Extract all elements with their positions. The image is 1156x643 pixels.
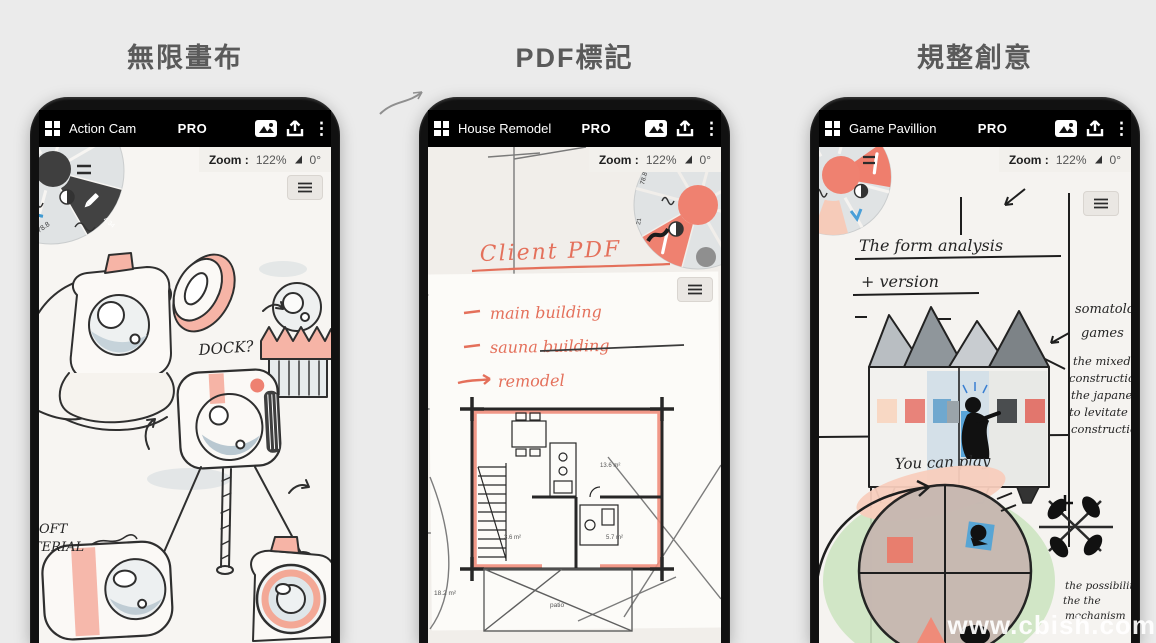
app-bar: Game Pavillion PRO ⋮ bbox=[819, 110, 1131, 147]
note-line: the possibility of bbox=[1065, 580, 1131, 592]
wheel-center[interactable] bbox=[822, 156, 860, 194]
halfmoon-icon bbox=[855, 185, 868, 198]
zoom-indicator[interactable]: Zoom : 122% 0° bbox=[589, 147, 721, 172]
pro-badge: PRO bbox=[178, 121, 208, 136]
grid-menu-icon[interactable] bbox=[434, 121, 450, 137]
version-heading: + version bbox=[861, 272, 939, 291]
note-line: the the bbox=[1063, 595, 1101, 607]
note-sauna-building: sauna building bbox=[490, 336, 610, 357]
zoom-label: Zoom : bbox=[1009, 153, 1049, 167]
angle-value: 0° bbox=[310, 153, 321, 167]
background-sketch-line bbox=[378, 84, 426, 120]
share-export-icon[interactable] bbox=[675, 119, 695, 138]
share-export-icon[interactable] bbox=[285, 119, 305, 138]
side-note-somatology: somatology bbox=[1075, 302, 1131, 317]
camera-sketch-bottom-right bbox=[251, 537, 331, 641]
layers-menu-button[interactable] bbox=[677, 277, 713, 302]
tool-wheel[interactable] bbox=[819, 147, 891, 235]
note-remodel: remodel bbox=[498, 371, 565, 391]
zoom-value: 122% bbox=[646, 153, 677, 167]
pro-badge: PRO bbox=[581, 121, 611, 136]
drawing-canvas[interactable]: Zoom : 122% 0° bbox=[428, 147, 721, 643]
room-area-mid: 5.7 m² bbox=[606, 535, 623, 541]
zoom-value: 122% bbox=[1056, 153, 1087, 167]
client-pdf-heading: Client PDF bbox=[479, 237, 621, 267]
angle-value: 0° bbox=[700, 153, 711, 167]
zoom-indicator[interactable]: Zoom : 122% 0° bbox=[199, 147, 331, 172]
zoom-label: Zoom : bbox=[599, 153, 639, 167]
side-note-games: games bbox=[1081, 326, 1124, 341]
house-remodel-sketch: Client PDF main building sauna building … bbox=[428, 147, 721, 643]
angle-icon bbox=[684, 155, 693, 164]
room-area-large: 13.6 m² bbox=[600, 463, 620, 469]
soft-note-2: TERIAL bbox=[39, 540, 84, 555]
image-import-icon[interactable] bbox=[645, 120, 667, 137]
phone-mockup-1: Action Cam PRO ⋮ Zoom : 122% 0° bbox=[30, 97, 340, 643]
pro-badge: PRO bbox=[978, 121, 1008, 136]
app-bar: House Remodel PRO ⋮ bbox=[428, 110, 721, 147]
wheel-center[interactable] bbox=[678, 185, 718, 225]
smudge-icon bbox=[696, 247, 716, 267]
overflow-menu-icon[interactable]: ⋮ bbox=[703, 120, 715, 137]
tool-size-label: 4.34 bbox=[102, 216, 116, 230]
image-import-icon[interactable] bbox=[1055, 120, 1077, 137]
layers-menu-button[interactable] bbox=[287, 175, 323, 200]
feature-title-1: 無限畫布 bbox=[30, 36, 340, 75]
blue-square-figure bbox=[965, 521, 994, 550]
note-line: to levitate above bbox=[1069, 405, 1131, 419]
game-pavillion-sketch: The form analysis + version somatology g… bbox=[819, 147, 1131, 643]
angle-icon bbox=[1094, 155, 1103, 164]
grid-menu-icon[interactable] bbox=[45, 121, 61, 137]
note-line: the japanese' bbox=[1071, 388, 1131, 402]
note-line: the mixed bbox=[1073, 354, 1131, 368]
share-export-icon[interactable] bbox=[1085, 119, 1105, 138]
image-import-icon[interactable] bbox=[255, 120, 277, 137]
action-cam-sketch: DOCK? OFT TERIAL 4.34 bbox=[39, 147, 331, 643]
overflow-menu-icon[interactable]: ⋮ bbox=[1113, 120, 1125, 137]
dock-note: DOCK? bbox=[197, 337, 255, 359]
angle-value: 0° bbox=[1110, 153, 1121, 167]
feature-title-2: PDF標記 bbox=[419, 36, 730, 75]
area-note: 18.2 m² bbox=[434, 590, 457, 597]
halfmoon-icon bbox=[669, 222, 683, 236]
drawing-canvas[interactable]: Zoom : 122% 0° The form analysis bbox=[819, 147, 1131, 643]
phone-mockup-2: House Remodel PRO ⋮ Zoom : 122% 0° bbox=[419, 97, 730, 643]
angle-icon bbox=[294, 155, 303, 164]
patio-label: patio bbox=[550, 602, 564, 609]
camera-sketch-bottom-left bbox=[41, 540, 174, 641]
zoom-indicator[interactable]: Zoom : 122% 0° bbox=[999, 147, 1131, 172]
halfmoon-icon bbox=[60, 190, 74, 204]
camera-sketch-top bbox=[160, 244, 247, 342]
phone-mockup-3: Game Pavillion PRO ⋮ Zoom : 122% 0° bbox=[810, 97, 1140, 643]
note-main-building: main building bbox=[490, 302, 602, 323]
note-line: construction is bbox=[1069, 371, 1131, 385]
overflow-menu-icon[interactable]: ⋮ bbox=[313, 120, 325, 137]
zoom-label: Zoom : bbox=[209, 153, 249, 167]
app-bar: Action Cam PRO ⋮ bbox=[39, 110, 331, 147]
document-title: Action Cam bbox=[69, 121, 136, 136]
feature-title-3: 規整創意 bbox=[810, 36, 1140, 75]
layers-menu-button[interactable] bbox=[1083, 191, 1119, 216]
room-area-small: 3.6 m² bbox=[504, 535, 521, 541]
note-line: construction. bbox=[1071, 422, 1131, 436]
hand-camera-sketch bbox=[39, 253, 174, 430]
site-watermark: www.cbish.com bbox=[947, 610, 1156, 641]
document-title: Game Pavillion bbox=[849, 121, 936, 136]
document-title: House Remodel bbox=[458, 121, 551, 136]
zoom-value: 122% bbox=[256, 153, 287, 167]
form-analysis-heading: The form analysis bbox=[859, 236, 1003, 255]
tool-wheel[interactable]: 4.34 78.8 bbox=[39, 147, 124, 244]
grid-menu-icon[interactable] bbox=[825, 121, 841, 137]
spinner-symbol bbox=[1039, 493, 1113, 561]
drawing-canvas[interactable]: Zoom : 122% 0° bbox=[39, 147, 331, 643]
mixed-construction-note: the mixed construction is the japanese' … bbox=[1069, 354, 1131, 436]
soft-note-1: OFT bbox=[39, 522, 69, 537]
